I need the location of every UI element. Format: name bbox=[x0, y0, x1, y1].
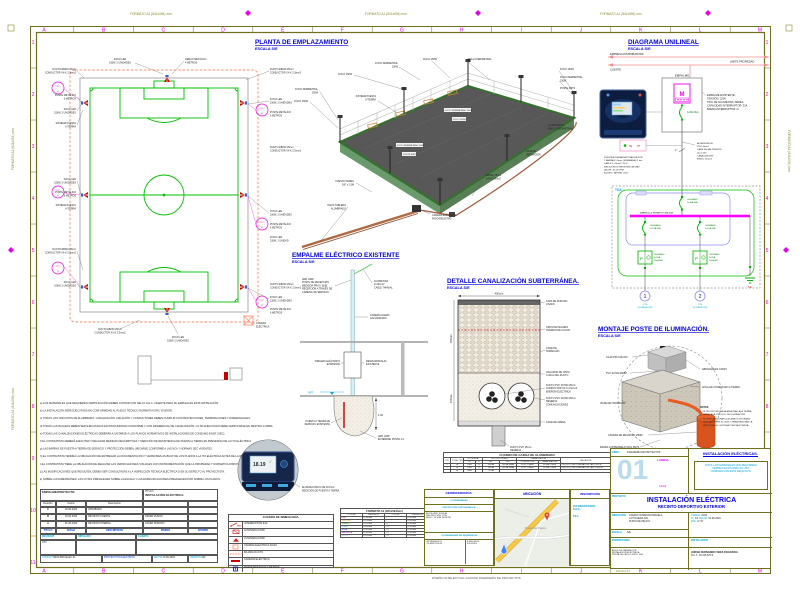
dif-label: LEGRAND bbox=[709, 253, 720, 256]
legend-label: CAÑERÍA ELÉCTRICA bbox=[243, 558, 270, 564]
dim-label: 400mm bbox=[495, 292, 504, 296]
grid-number: 6 bbox=[766, 300, 769, 306]
instrument-photo bbox=[600, 90, 662, 138]
note-line: j) LAS MODIFICACIONES QUE RESULTEN, DEBE… bbox=[39, 468, 225, 473]
grid-letter: F bbox=[341, 569, 344, 575]
annotation-label: CONDUCTOR XX-K 2.5mm2 bbox=[270, 149, 302, 152]
rev-desc: APROBADO. bbox=[86, 507, 143, 514]
grid-letter: I bbox=[521, 28, 522, 34]
annotation-label: POSTE 6MTS bbox=[560, 87, 576, 90]
rev-letter: A bbox=[40, 521, 56, 528]
annotation-label: FOCO 150W bbox=[453, 119, 467, 121]
annotation-label: CONDUCTOR XX-K 2.5mm2 bbox=[45, 71, 77, 74]
conduit-icon bbox=[229, 558, 243, 564]
note-line: CUMPLEN CON ESTE REQUISITO. bbox=[695, 470, 767, 473]
soccer-pitch bbox=[90, 81, 238, 309]
annotation-label: 5/8" x 1.5M bbox=[342, 183, 354, 186]
circuit-label: ILUMINACIÓN bbox=[638, 306, 653, 309]
table-row: WHITE0.25 mm2500.18 mm bbox=[341, 535, 429, 538]
grid-number: 4 bbox=[32, 196, 35, 202]
legend-label: CÁMARA ELÉCTRICA 40x40 bbox=[243, 544, 277, 550]
annotation-label: 6 METROS bbox=[270, 226, 283, 229]
annotation-label: 150W, 2 UNIDADES bbox=[54, 111, 76, 114]
annotation-label: ABRAZADERA CADDY bbox=[702, 368, 728, 371]
grid-letter: M bbox=[758, 28, 762, 34]
annotation-label: EXISTENTE bbox=[366, 363, 380, 366]
grid-letter: G bbox=[400, 569, 404, 575]
grid-number: 5 bbox=[32, 248, 35, 254]
annotation-label: CONDUCTOR XX-K 2.5mm2 bbox=[94, 331, 126, 334]
materials-note: NOTA: LOS MATERIALES QUE REQUIEREN CERTI… bbox=[694, 461, 768, 490]
ground-excavation bbox=[334, 396, 374, 436]
rev-fecha: 10-06-2023 bbox=[56, 507, 86, 514]
grid-letter: C bbox=[161, 28, 165, 34]
annotation-label: 150W bbox=[312, 91, 319, 94]
note-line: DESCANSEN EN EL SUELO PARA REALIZAR LA bbox=[703, 421, 753, 424]
rev-por: JAVIER DONOSO bbox=[143, 521, 188, 528]
annotation-label: ELÉCTRICA bbox=[256, 325, 270, 328]
dim-label: 450mm bbox=[449, 334, 453, 343]
circuit-label: CTE bbox=[643, 304, 648, 306]
legend-label: LUMINARIA 150W bbox=[243, 529, 265, 535]
georef-line: HUSO: 19 SUR (NORTE) bbox=[426, 517, 492, 519]
inscripcion-line: TE-1 bbox=[573, 515, 607, 518]
cto-tag-label: CTO bbox=[56, 266, 61, 268]
grid-letter: H bbox=[460, 28, 464, 34]
annotation-label: ENERGÍA ELÉCTRICA bbox=[546, 390, 571, 393]
tierra-neutralizacion: TE TP PUESTA A TIERRA NEUTRALIZACIÓN 2 B… bbox=[604, 140, 682, 175]
empalme-title: EMPALME ELÉCTRICO EXISTENTE bbox=[292, 250, 400, 259]
montaje-scale: ESCALA S/E bbox=[598, 334, 621, 338]
map-place-label: Punta de Peuco bbox=[525, 526, 547, 530]
tp-label: TP bbox=[637, 145, 640, 148]
info-line: CABLE 2 x 6mm2, XX-K bbox=[604, 162, 628, 165]
info-line: LIBRE DE HALÓGENOS bbox=[697, 148, 722, 151]
annotation-label: POSTE 6MTS bbox=[403, 154, 417, 156]
annotation-label: CONDUCTOR XX-K 2.5mm2 bbox=[45, 251, 77, 254]
grid-number: 9 bbox=[32, 456, 35, 462]
annotation-label: (MALLA PERIMETRAL) bbox=[548, 127, 573, 130]
junction-box bbox=[412, 205, 421, 212]
format-label: FORMATO A1 (841x594) mm bbox=[787, 130, 791, 172]
table-row: 20 3000 TOTAL bbox=[444, 470, 611, 473]
note-line: a) LOS MATERIALES QUE REQUIEREN CERTIFIC… bbox=[40, 400, 219, 405]
annotation-label: FOCO 150W bbox=[338, 73, 353, 76]
grid-number: 6 bbox=[32, 300, 35, 306]
annotation-label: A 40cm DEL DUCTO bbox=[546, 374, 568, 377]
info-line: EMPALME EXISTENTE: bbox=[707, 93, 736, 97]
info-line: BARRA INTERRUPTOR: D bbox=[707, 107, 739, 111]
meter-photo: 18.19 ✓ EL RESULTADO FUE 18.19 Ω, MEDICI… bbox=[238, 440, 340, 500]
proyecto-subtitle: RECINTO DEPORTIVO EXTERIOR bbox=[611, 504, 772, 509]
montaje-title: MONTAJE POSTE DE ILUMINACIÓN. bbox=[598, 324, 709, 333]
circuit-outputs: 1 2 CTE ILUMINACIÓN CTE ILUMINACIÓN bbox=[638, 291, 708, 309]
annotation-label: FOCO 150W bbox=[294, 100, 309, 103]
info-line: Vp=0.24V bbox=[697, 152, 707, 154]
rol-value: 0-717 bbox=[697, 520, 703, 523]
check-icon: ✓ bbox=[269, 459, 272, 464]
conductor-count: 2 bbox=[675, 148, 677, 152]
annotation-label: MALLA PERIMETRAL bbox=[468, 58, 492, 61]
rev-letter: C bbox=[40, 507, 56, 514]
note-line: PARA CADA CIRCUITO DE ILUMINACIÓN. bbox=[703, 413, 746, 416]
planta-title: PLANTA DE EMPLAZAMIENTO bbox=[255, 39, 348, 46]
pen-table: FORMATO A1 (841x594mm) COLOR ESPESOR COL… bbox=[340, 508, 429, 538]
grid-letter: D bbox=[221, 569, 225, 575]
pole-icon bbox=[229, 566, 243, 572]
circuit-label: CTE bbox=[698, 304, 703, 306]
cto-tag-number: 2 bbox=[261, 111, 263, 115]
limite-label: LIMITE PROPIEDAD bbox=[730, 60, 754, 64]
annotation-label: CÁMARA DE REGISTRO 25MM bbox=[608, 434, 643, 437]
canalizacion-detail: DETALLE CANALIZACIÓN SUBTERRÁNEA. ESCALA… bbox=[447, 276, 579, 452]
note-line: 1. SE PROYECTA UNA BAJADA (MALLA) A TIER… bbox=[700, 410, 752, 413]
breaker-label: 1x10A 6kA bbox=[705, 227, 716, 230]
annotation-label: MEDICIÓN DE PUESTA A TIERRA. bbox=[302, 489, 340, 492]
dim-label: 1.00 bbox=[378, 413, 384, 417]
legend-label: INTERRUPTOR 9/12 bbox=[243, 522, 268, 528]
legend-label: POSTE METÁLICO 7 METROS bbox=[243, 566, 279, 572]
main-breaker-label: 1x32A 6kA bbox=[687, 111, 699, 114]
unilineal-scale: ESCALA S/E bbox=[628, 47, 651, 51]
montaje-detail: MONTAJE POSTE DE ILUMINACIÓN. ESCALA S/E bbox=[598, 324, 753, 450]
dif-label: 2x25A bbox=[654, 256, 661, 259]
breaker-label: 2x40A 6kA bbox=[687, 201, 698, 204]
differential-2: P LEGRAND 2x25A 30mA AC bbox=[693, 251, 720, 264]
grid-number: 4 bbox=[766, 196, 769, 202]
annotation-label: 6 METROS bbox=[64, 194, 77, 197]
annotation-label: PVC SCH40 25MM bbox=[606, 372, 627, 375]
grid-number: 8 bbox=[766, 404, 769, 410]
propietario-label: PROPIETARIO bbox=[612, 539, 630, 542]
circuit-label: ILUMINACIÓN bbox=[693, 306, 708, 309]
cto-tag-number: 2 bbox=[261, 303, 263, 307]
annotation-label: LISADO bbox=[546, 303, 555, 306]
fecha-label: FECHA bbox=[154, 556, 162, 559]
legend-label: BAJADA DUCTO bbox=[243, 551, 263, 557]
cto-tag-label: CTO bbox=[260, 108, 265, 110]
annotation-label: 6 METROS bbox=[270, 114, 283, 117]
duct-icon bbox=[229, 551, 243, 557]
legend-row: LUMINARIA 150W bbox=[229, 529, 333, 536]
map: Punta de Peuco bbox=[495, 499, 569, 566]
annotation-label: EXISTENTE bbox=[327, 363, 341, 366]
dim-1m: 1.00 bbox=[375, 398, 384, 430]
cto-tag-number: 2 bbox=[261, 225, 263, 229]
grid-number: 2 bbox=[766, 92, 769, 98]
breaker-label: LEGRAND bbox=[705, 224, 716, 227]
lamina-label: LÁMINA bbox=[657, 458, 669, 462]
format-label: FORMATO A1 (841x594) mm bbox=[11, 388, 15, 430]
sheet-format: A1/A3 bbox=[659, 485, 666, 488]
annotation-label: 150W bbox=[392, 65, 399, 68]
inscripcion-block: INSCRIPCIÓN P/A REGISTRADO S.E.C. TE-1 bbox=[570, 489, 610, 566]
grid-number: 1 bbox=[32, 40, 35, 46]
empalme-scale: ESCALA S/E bbox=[292, 260, 315, 264]
proyecto-label: PROYECTO: bbox=[612, 495, 626, 498]
note-line: d) TODAS LAS BAJADAS DEBEN SER EJECUTADA… bbox=[40, 423, 274, 428]
direccion-label: DIRECCIÓN: bbox=[612, 514, 626, 517]
info-line: CANALIZACIÓN: bbox=[697, 154, 714, 157]
riser-pipe bbox=[492, 426, 505, 446]
annotation-label: 6 METROS bbox=[270, 311, 283, 314]
notes-title: NOTAS: bbox=[700, 406, 709, 409]
annotation-label: ALUMBRADO bbox=[331, 207, 346, 210]
inscripcion-line: S.E.C. bbox=[573, 508, 607, 511]
escala-label: ESCALA: bbox=[612, 531, 623, 534]
annotation-label: PASO/REGISTRO bbox=[432, 217, 452, 220]
titleblock-header: INSTALACIÓN ELÉCTRICAS. bbox=[689, 451, 772, 456]
annotation-label: 150W, 2 UNIDADES bbox=[167, 339, 189, 342]
legend-row: LUMINARIA 150W bbox=[229, 537, 333, 544]
ubicacion-title: UBICACIÓN bbox=[495, 490, 569, 499]
note-line: c) TODOS LOS CIRCUITOS DE ALUMBRADO, CAN… bbox=[40, 415, 251, 420]
info-line: PUESTA A TIERRA NEUTRALIZACIÓN bbox=[604, 156, 643, 159]
aviso-line: PUNTA DE PEUCO PROV. S/N. bbox=[612, 554, 687, 556]
instalador-rut: R.U.T.: 18.345.678-9 bbox=[691, 554, 770, 557]
grid-number: 7 bbox=[32, 352, 35, 358]
circuit-number: 2 bbox=[699, 294, 702, 300]
unilineal-title: DIAGRAMA UNILINEAL bbox=[628, 39, 699, 46]
info-line: MEDICIÓN DE RESISTENCIA SPAT bbox=[604, 165, 640, 168]
grid-letter: C bbox=[161, 569, 165, 575]
luminaire-icon bbox=[229, 529, 243, 535]
annotation-label: CABEZAL DE SERVICIO bbox=[302, 291, 329, 294]
fecha-value: 01-06-2023 bbox=[708, 517, 720, 520]
info-line: CAPACIDAD INTERRUPTOR: 32A bbox=[707, 104, 748, 108]
sheet-footer: DISEÑO INTELECTUAL GALVANI INGENIERÍA DE… bbox=[432, 575, 521, 580]
annotation-label: CAMA DE ARENA bbox=[546, 421, 566, 424]
format-label: FORMATO A1 (841x594) mm bbox=[130, 12, 172, 16]
legend-title: CUADRO DE SIMBOLOGÍA. bbox=[229, 515, 333, 522]
empalme-info: EMPALME EXISTENTE: TENSIÓN: 220V TIPO DE… bbox=[707, 93, 748, 111]
version-label: VERSIÓN bbox=[190, 556, 201, 559]
coord-value: -70.69817236 W bbox=[426, 543, 464, 545]
annotation-label: A TIERRA bbox=[65, 207, 76, 210]
annotation-label: FOCO PERIMETRAL 150W bbox=[397, 144, 425, 147]
dif-label: 30mA AC bbox=[654, 259, 664, 262]
empresa-label: EMPRESA DISTRIBUIDORA bbox=[610, 52, 644, 56]
direccion-line: PUNTA DE PEUCO. bbox=[629, 520, 662, 523]
annotation-label: 4 METROS bbox=[185, 61, 198, 64]
cliente-label: CLIENTE bbox=[610, 68, 621, 72]
note-line: b) LA INSTALACIÓN SERÁ EJECUTADA EN CONF… bbox=[40, 408, 173, 413]
note-line: h) EL CONTRATISTA TENDRÁ LA OBLIGACIÓN D… bbox=[40, 453, 262, 458]
annotation-label: HORMIGÓN bbox=[546, 350, 560, 353]
canalizacion-scale: ESCALA S/E bbox=[447, 286, 470, 290]
cto-tag-number: 1 bbox=[57, 89, 59, 93]
mini-elevation bbox=[138, 356, 242, 384]
luminaire-icon bbox=[229, 537, 243, 543]
instalador-label: INSTALADOR bbox=[691, 539, 708, 542]
empalme-detail: EMPALME ELÉCTRICO EXISTENTE ESCALA S/E N… bbox=[292, 250, 428, 441]
grid-number: 1 bbox=[766, 40, 769, 46]
grid-number: 8 bbox=[32, 404, 35, 410]
annotation-label: DERIVACIÓN bbox=[526, 153, 541, 156]
npt-marker bbox=[330, 392, 334, 395]
titulo-value: INSTALACIÓN ELÉCTRICA. bbox=[145, 493, 217, 497]
info-line: VALOR: 18.19 OHM bbox=[604, 168, 624, 171]
legend-row: CAÑERÍA ELÉCTRICA bbox=[229, 558, 333, 565]
revision-value: XXX bbox=[40, 540, 76, 555]
rev-letter: B bbox=[40, 514, 56, 521]
table-row: B 15-06-2023 REVISIÓN CLIENTE. DIDIER MU… bbox=[40, 514, 218, 521]
rev-por bbox=[143, 507, 188, 514]
annotation-label: XX-K 2.5mm2 bbox=[486, 177, 502, 180]
annotation-label: GALVANIZADO bbox=[370, 317, 387, 320]
inscripcion-title: INSCRIPCIÓN bbox=[571, 490, 609, 499]
ubicacion-block: UBICACIÓN Punta de Peuco bbox=[494, 489, 570, 566]
annotation-label: CABLE THHN/AL bbox=[374, 286, 393, 289]
switch-icon bbox=[229, 522, 243, 528]
circuit-breaker-1: LEGRAND 1x10A 6kA bbox=[643, 216, 661, 251]
annotation-label: FOCO 150W bbox=[423, 58, 438, 61]
grid-number: 3 bbox=[766, 144, 769, 150]
info-line: 2 BARRAS 1.5mts, SEPARADAS 2 mts bbox=[604, 159, 643, 162]
rev-fecha: 15-06-2023 bbox=[56, 514, 86, 521]
annotation-label: FOCO 150W bbox=[560, 68, 575, 71]
annotation-label: TENDIDO DE COLOR bbox=[546, 329, 570, 332]
note-line: g) LAS BARRAS DE PUESTA A TIERRA DE SERV… bbox=[40, 446, 213, 451]
annotation-label: 150W, 2 UNIDADES bbox=[270, 101, 292, 104]
circuit-breaker-2: LEGRAND 1x10A 6kA bbox=[698, 216, 716, 251]
grid-letter: H bbox=[460, 569, 464, 575]
busbar-label: BARRA (Cu) REPARTIDORA 80A bbox=[640, 212, 673, 215]
annotation-label: 6 METROS bbox=[64, 97, 77, 100]
legend-row: POSTE METÁLICO 7 METROS bbox=[229, 566, 333, 572]
meter-reading: 18.19 bbox=[253, 462, 266, 468]
note-line: 2. SE DEBE ASEGURAR QUE AMBOS SISTEMAS bbox=[700, 417, 751, 420]
georeferencia-block: GEOREFERENCIA. COORDENADAS PROYECCIÓN CA… bbox=[424, 489, 494, 566]
annotation-label: 150W, 2 UNIDADES bbox=[54, 181, 76, 184]
info-line: ALIMENTADOR: bbox=[697, 142, 714, 145]
annotation-label: A TIERRA bbox=[65, 125, 76, 128]
layer-cobble bbox=[458, 305, 540, 373]
breaker-label: LEGRAND bbox=[650, 224, 661, 227]
georef-sec: COORDENADAS DE REFERENCIA bbox=[425, 533, 493, 540]
legend-row: BAJADA DUCTO bbox=[229, 551, 333, 558]
canalizacion-title: DETALLE CANALIZACIÓN SUBTERRÁNEA. bbox=[447, 276, 579, 285]
fecha-value: 10-06-2023 bbox=[163, 556, 175, 559]
note-line: k) SOBRE LAS DIMENSIONES: LAS COTAS PREV… bbox=[40, 477, 221, 481]
lamina-number: 01 bbox=[617, 456, 648, 484]
annotation-label: 150W, 1 UNIDAD bbox=[270, 239, 289, 242]
planta-scale: ESCALA S/E bbox=[255, 47, 278, 51]
breaker-label: 1x10A 6kA bbox=[650, 227, 661, 230]
rol-label: ROL: bbox=[691, 520, 697, 523]
dif-label: LEGRAND bbox=[654, 253, 665, 256]
legend-row: CÁMARA ELÉCTRICA 40x40 bbox=[229, 544, 333, 551]
grid-number: 5 bbox=[766, 248, 769, 254]
legend-row: INTERRUPTOR 9/12 bbox=[229, 522, 333, 529]
ground-branch: T.A. bbox=[745, 216, 755, 289]
note-line: MEDICIÓN DEL SISTEMA PUESTA A TIERRA. bbox=[703, 424, 749, 427]
annotation-label: A TIERRA bbox=[365, 98, 376, 101]
annotation-label: ENTERRAR POSTE 1.0 bbox=[378, 438, 405, 441]
empalme-label: EMPALME bbox=[675, 74, 689, 78]
cto-tag-label: CTO bbox=[56, 86, 61, 88]
title-block: OBRA INGENIERÍA DE PROYECTOS LÁMINA 01 A… bbox=[610, 448, 771, 569]
note-line: e) TODAS LAS CANALIZACIONES ELÉCTRICAS D… bbox=[40, 430, 225, 435]
table-row: C 10-06-2023 APROBADO. bbox=[40, 507, 218, 514]
annotation-label: CONDUCTOR XX-K 2.5mm2 bbox=[270, 71, 302, 74]
annotation-label: 150W, 2 UNIDADES bbox=[54, 284, 76, 287]
differential-1: P LEGRAND 2x25A 30mA AC bbox=[638, 251, 665, 264]
tda-board: TDA LEGRAND 2x40A 6kA BARRA (Cu) REPARTI… bbox=[612, 186, 760, 291]
codigo-value: B203-PRO-ELEC-01 bbox=[53, 556, 75, 559]
camera-icon bbox=[229, 544, 243, 550]
te-label: TE bbox=[629, 145, 632, 148]
dim-label: 150mm bbox=[449, 394, 453, 403]
wall-post bbox=[401, 342, 405, 396]
cto-tag-label: CTO bbox=[260, 300, 265, 302]
grid-number: 11 bbox=[30, 560, 35, 566]
grid-letter: L bbox=[699, 28, 702, 34]
tda-label: TDA bbox=[615, 188, 622, 192]
annotation-label: FOCO PERIMETRAL 150W bbox=[445, 109, 473, 112]
georef-sec: COORDENADAS bbox=[425, 498, 493, 505]
layer-top bbox=[458, 300, 540, 305]
load-table: CUADRO DE CARGA DE ALUMBRADO CTO TOTAL C… bbox=[443, 452, 610, 473]
proyectista-label: PROYECTISTA ELÉCTRICO. bbox=[102, 555, 152, 563]
dif-label: 30mA AC bbox=[709, 259, 719, 262]
note-line: i) EL CONTRATISTA TIENE LA OBLIGACIÓN DE… bbox=[40, 461, 262, 466]
annotation-label: 150W, 2 UNIDADES bbox=[109, 61, 131, 64]
grid-letter: G bbox=[400, 28, 404, 34]
cto-tag-number: 1 bbox=[57, 269, 59, 273]
annotation-label: SERVICIO EXISTENTE bbox=[305, 423, 331, 426]
concrete-base bbox=[622, 370, 700, 432]
npt-label: NPT bbox=[308, 391, 314, 395]
meter-m: M bbox=[680, 92, 685, 98]
escala-value: S/E bbox=[627, 531, 631, 534]
codigo-label: CÓDIGO* bbox=[42, 556, 53, 559]
rev-fecha: 01-06-2023 bbox=[56, 521, 86, 528]
breaker-label: LEGRAND bbox=[687, 198, 698, 201]
grid-number: 3 bbox=[32, 144, 35, 150]
grid-number: 2 bbox=[32, 92, 35, 98]
proyecto-title: INSTALACIÓN ELÉCTRICA bbox=[611, 497, 772, 504]
alimentador-info: ALIMENTADOR: XX-K 6mm2 LIBRE DE HALÓGENO… bbox=[697, 142, 722, 161]
note-line: f) EL CONTRATISTA DEBERÁ EJECUTAR Y REAL… bbox=[40, 438, 252, 443]
annotation-label: 150W bbox=[560, 79, 567, 82]
ta-label: T.A. bbox=[748, 285, 753, 289]
cto-tag-label: CTO bbox=[260, 222, 265, 224]
info-line: XX-K 6mm2 bbox=[697, 146, 710, 148]
annotation-label: BASE DE HORMIGÓN bbox=[601, 402, 626, 405]
georef-title: GEOREFERENCIA. bbox=[425, 490, 493, 498]
tablero-box bbox=[344, 352, 361, 378]
annotation-label: CAJA IP65 100x100 bbox=[606, 356, 628, 359]
revision-table: EMPALME/PROYECTO: TÍTULO: INSTALACIÓN EL… bbox=[40, 489, 218, 563]
annotation-label: ANCLAJE CONECTADO A TIERRA bbox=[702, 386, 740, 389]
rev-desc: REVISIÓN INTERNA. bbox=[86, 521, 143, 528]
dif-label: 2x25A bbox=[709, 256, 716, 259]
grid-letter: F bbox=[341, 28, 344, 34]
format-label: FORMATO A1 (841x594) mm bbox=[365, 12, 407, 16]
layer-base bbox=[458, 421, 540, 426]
rev-table-header: EMPALME/PROYECTO: bbox=[40, 489, 143, 501]
symbol-legend: CUADRO DE SIMBOLOGÍA. INTERRUPTOR 9/12 L… bbox=[228, 514, 334, 568]
circuit-number: 1 bbox=[644, 294, 647, 300]
isometric-view: FOCO PERIMETRAL 150W FOCO 150W FOCO 150W… bbox=[294, 58, 583, 250]
rev-desc: REVISIÓN CLIENTE. bbox=[86, 514, 143, 521]
single-line-diagram: DIAGRAMA UNILINEAL ESCALA S/E EMPRESA DI… bbox=[600, 39, 769, 309]
dif-symbol: P bbox=[640, 256, 643, 261]
format-label: FORMATO A1 (841x594) mm bbox=[11, 128, 15, 170]
annotation-label: CONDUCTOR XX-K 2.5mm2 bbox=[270, 286, 302, 289]
version-value: A01 bbox=[201, 556, 205, 559]
